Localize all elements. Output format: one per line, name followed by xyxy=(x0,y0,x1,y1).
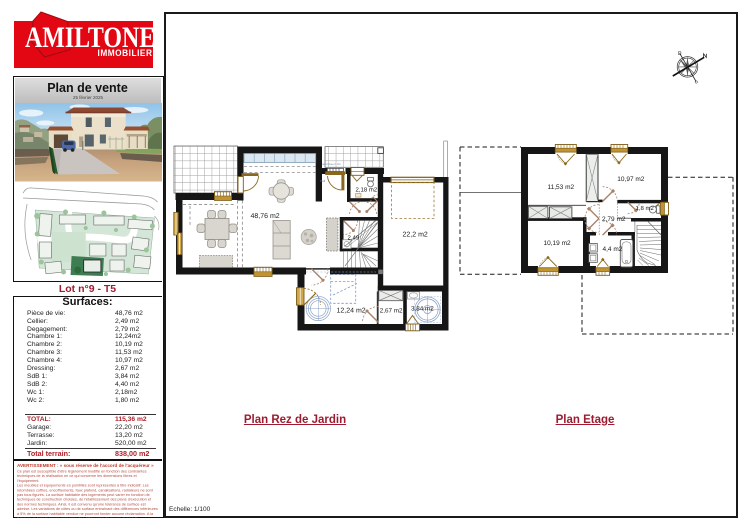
svg-text:3,84 m2: 3,84 m2 xyxy=(411,306,434,313)
svg-text:10,97 m2: 10,97 m2 xyxy=(617,176,644,183)
svg-text:4,4 m2: 4,4 m2 xyxy=(603,246,623,253)
svg-text:2,49: 2,49 xyxy=(348,235,360,242)
svg-text:22,2 m2: 22,2 m2 xyxy=(403,232,428,239)
svg-text:48,76 m2: 48,76 m2 xyxy=(251,213,280,220)
svg-text:11,53 m2: 11,53 m2 xyxy=(548,184,575,191)
svg-text:1,8 m2: 1,8 m2 xyxy=(636,205,655,212)
svg-text:2,67 m2: 2,67 m2 xyxy=(380,308,403,315)
svg-text:hall: hall xyxy=(321,179,326,183)
svg-text:12,24 m2: 12,24 m2 xyxy=(337,308,366,315)
svg-text:2,18 m2: 2,18 m2 xyxy=(356,187,378,194)
svg-text:2,79 m2: 2,79 m2 xyxy=(602,216,626,223)
svg-text:10,19 m2: 10,19 m2 xyxy=(544,240,571,247)
svg-text:retombee h 2m: retombee h 2m xyxy=(322,162,341,166)
